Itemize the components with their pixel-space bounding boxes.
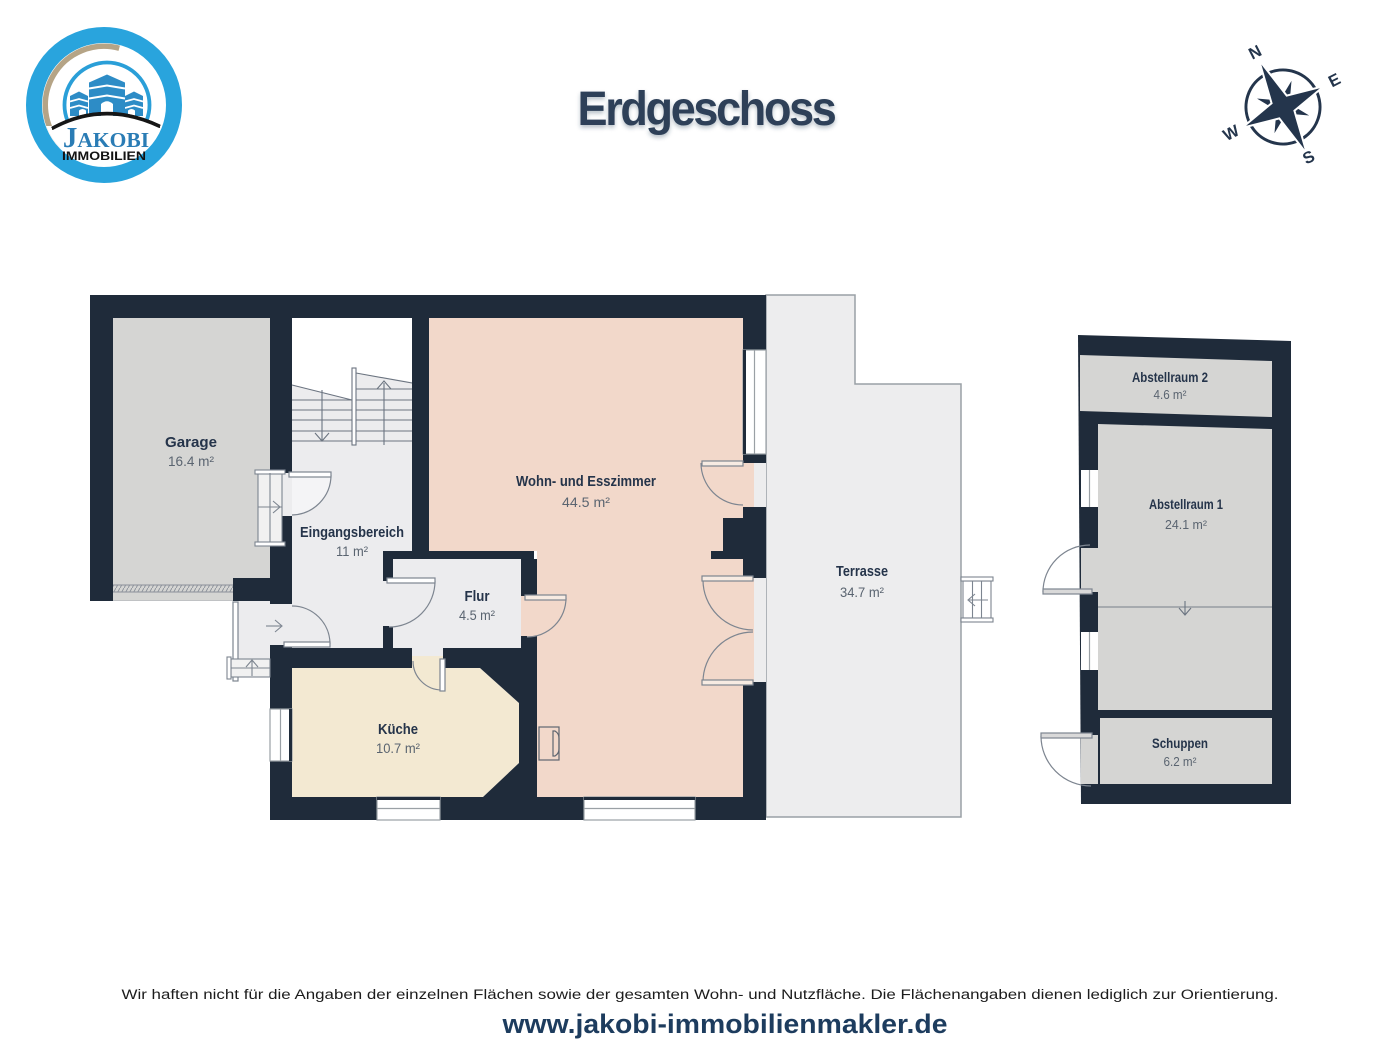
svg-text:IMMOBILIEN: IMMOBILIEN <box>62 151 146 163</box>
svg-text:W: W <box>1220 122 1242 145</box>
svg-text:44.5 m²: 44.5 m² <box>562 495 611 510</box>
svg-text:11 m²: 11 m² <box>336 544 368 559</box>
svg-text:Erdgeschoss: Erdgeschoss <box>578 83 836 136</box>
svg-text:N: N <box>1246 42 1265 63</box>
svg-text:10.7 m²: 10.7 m² <box>376 741 420 756</box>
svg-text:Terrasse: Terrasse <box>836 563 888 580</box>
svg-text:16.4 m²: 16.4 m² <box>168 454 214 469</box>
svg-text:Wohn- und Esszimmer: Wohn- und Esszimmer <box>516 473 656 490</box>
svg-text:E: E <box>1326 70 1344 91</box>
svg-text:Abstellraum 2: Abstellraum 2 <box>1132 370 1208 385</box>
svg-text:24.1 m²: 24.1 m² <box>1165 518 1207 532</box>
svg-text:Eingangsbereich: Eingangsbereich <box>300 524 404 541</box>
svg-text:6.2 m²: 6.2 m² <box>1164 755 1197 769</box>
svg-text:S: S <box>1300 147 1318 168</box>
svg-text:Flur: Flur <box>465 588 490 605</box>
svg-text:Küche: Küche <box>378 721 418 738</box>
svg-text:Wir haften nicht für die Angab: Wir haften nicht für die Angaben der ein… <box>122 987 1279 1002</box>
svg-text:Schuppen: Schuppen <box>1152 736 1208 751</box>
svg-text:34.7 m²: 34.7 m² <box>840 585 884 600</box>
svg-text:Garage: Garage <box>165 434 217 451</box>
svg-text:4.6 m²: 4.6 m² <box>1154 388 1187 402</box>
svg-text:www.jakobi-immobilienmakler.de: www.jakobi-immobilienmakler.de <box>501 1009 947 1039</box>
svg-text:Abstellraum 1: Abstellraum 1 <box>1149 497 1223 512</box>
svg-text:4.5 m²: 4.5 m² <box>459 608 495 623</box>
